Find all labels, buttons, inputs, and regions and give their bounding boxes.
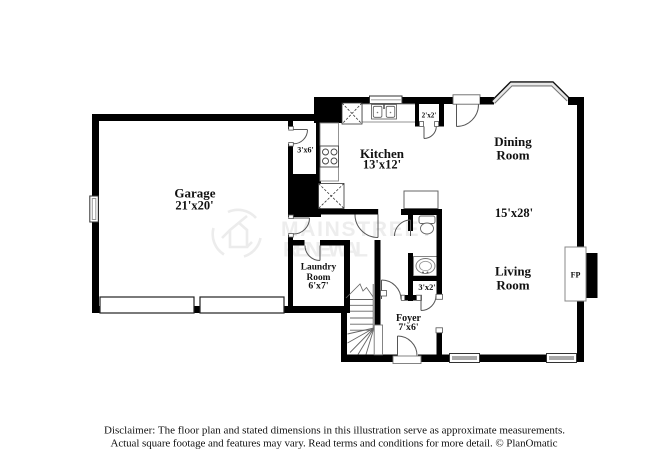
- svg-text:Room: Room: [496, 277, 529, 292]
- svg-text:13'x12': 13'x12': [363, 158, 401, 172]
- svg-text:3'x2': 3'x2': [418, 283, 435, 292]
- svg-text:Room: Room: [496, 148, 529, 163]
- svg-text:3'x6': 3'x6': [297, 146, 313, 155]
- svg-text:15'x28': 15'x28': [495, 206, 533, 220]
- svg-text:Living: Living: [495, 264, 532, 279]
- svg-text:21'x20': 21'x20': [175, 199, 213, 213]
- svg-text:FP: FP: [571, 271, 581, 280]
- svg-text:7'x6': 7'x6': [398, 322, 418, 333]
- svg-text:6'x7': 6'x7': [308, 280, 328, 291]
- svg-text:Laundry: Laundry: [301, 263, 337, 273]
- svg-text:2'x2': 2'x2': [422, 112, 437, 120]
- svg-text:Actual square footage and feat: Actual square footage and features may v…: [111, 438, 558, 450]
- svg-text:Disclaimer: The floor plan and: Disclaimer: The floor plan and stated di…: [104, 425, 565, 437]
